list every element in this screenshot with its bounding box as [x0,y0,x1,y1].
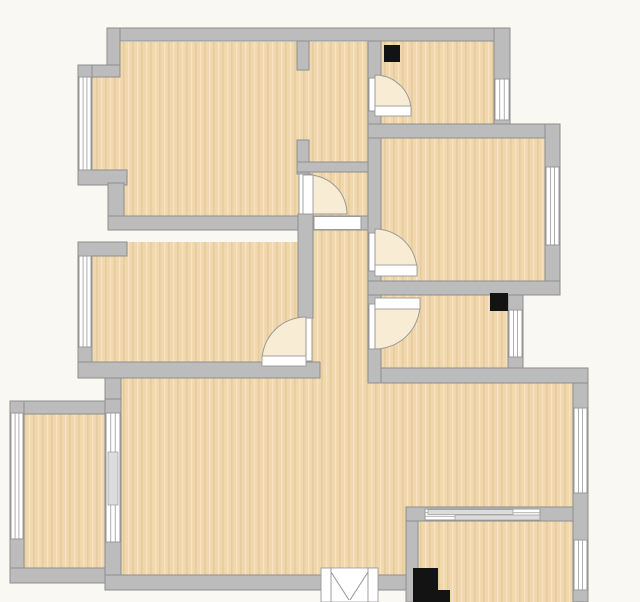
window-bathroom [509,310,522,357]
door-hall-leaf [303,175,313,214]
wall-balcony-bottom [10,568,110,583]
window-top-right-room [495,79,509,120]
window-middle-right-room-frame [546,167,559,245]
window-bathroom-frame [509,310,522,357]
window-balcony-left-frame [11,413,23,539]
divider-glazing-block [108,452,118,505]
door-middle-right-room-leaf [375,265,417,276]
floor-plan-canvas [0,0,640,602]
french-door-living-balcony-jamb-2 [368,568,378,602]
shaft-bathroom [490,293,508,311]
wall-stub-upper [297,41,309,70]
window-middle-left-room-frame [79,256,91,347]
window-balcony-left [11,413,23,539]
door-bathroom-leaf [375,298,420,309]
window-kitchen-right [574,540,587,590]
window-middle-left-room [79,256,91,347]
window-middle-right-room [546,167,559,245]
wall-balcony-top [10,401,110,414]
wall-bathroom-bottom [368,368,588,383]
pass-slider-panel-2 [455,515,540,520]
wall-left-cap-2 [78,242,127,256]
door-top-right-room-leaf [375,106,411,116]
french-door-living-balcony-jamb-1 [321,568,331,602]
window-top-left-room-frame [79,77,91,170]
wall-hall-top [297,162,368,172]
window-top-left-room [79,77,91,170]
french-door-living-balcony [321,568,378,602]
floor-balcony [10,401,121,583]
floor-plan-svg [0,0,640,602]
wall-middleright-bottom [368,281,560,295]
window-top-right-room-frame [495,79,509,120]
wall-top [107,28,510,41]
pass-slider-panel-1 [428,510,513,515]
shaft-top-right-room [384,45,400,62]
window-kitchen-right-frame [574,540,587,590]
french-door-living-balcony-opening [331,568,368,602]
pass-opening-hall [314,217,361,230]
wall-hall-west [298,214,313,318]
door-middle-left-room-leaf [262,356,306,366]
window-dining-right [574,408,587,493]
window-dining-right-frame [574,408,587,493]
wall-topright-room-bottom [368,124,560,138]
